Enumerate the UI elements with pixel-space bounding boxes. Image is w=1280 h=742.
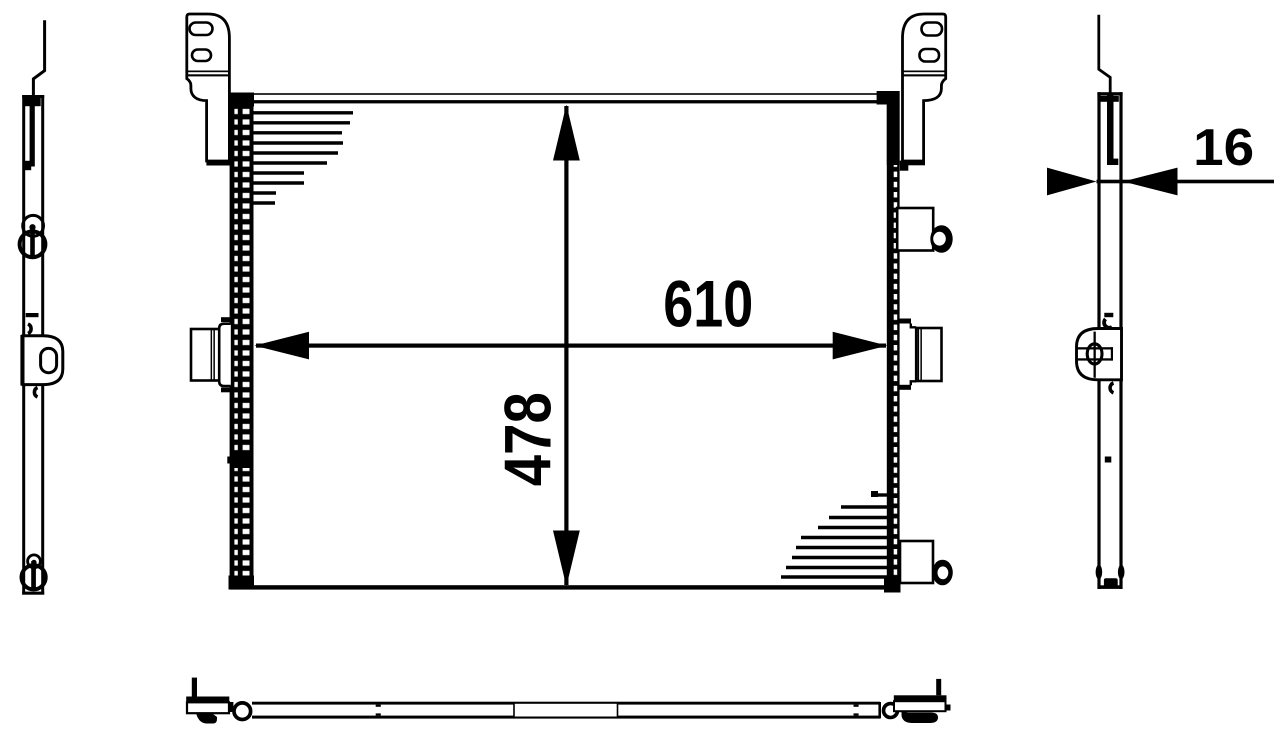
svg-text:478: 478 [492,392,565,486]
svg-text:16: 16 [1193,119,1254,177]
svg-text:610: 610 [663,268,753,341]
